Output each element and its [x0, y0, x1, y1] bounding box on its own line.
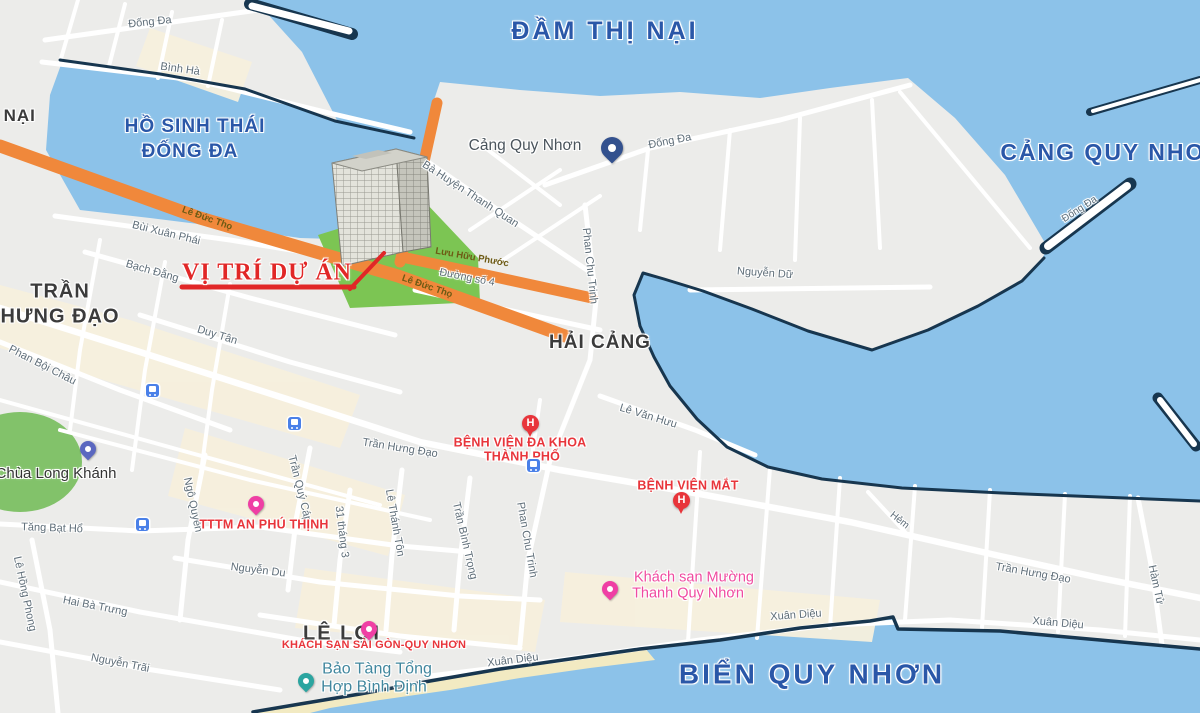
poi-label-muong-thanh-line1: Khách sạn Mường: [634, 570, 754, 585]
poi-label-benh-vien-da-khoa-line1: BỆNH VIỆN ĐA KHOA: [454, 436, 587, 449]
street-label-tang-bat-ho: Tăng Bạt Hổ: [21, 522, 83, 536]
poi-label-benh-vien-mat: BỆNH VIỆN MẮT: [637, 479, 738, 492]
district-label-tran-hung-dao-line1: TRẦN: [30, 282, 90, 303]
hospital-marker-icon-mat: H: [673, 492, 690, 509]
bus-stop-icon: [146, 384, 159, 397]
poi-label-muong-thanh-line2: Thanh Quy Nhơn: [632, 586, 744, 601]
poi-label-khach-san-sai-gon: KHÁCH SẠN SÀI GÒN-QUY NHƠN: [282, 640, 466, 652]
water-label-ho-sinh-thai-line1: HỒ SINH THÁI: [125, 117, 266, 137]
bus-stop-icon: [136, 518, 149, 531]
poi-label-bao-tang-line2: Hợp Bình Định: [321, 680, 427, 697]
water-label-cang-quy-nhon: CẢNG QUY NHƠN: [1000, 140, 1200, 164]
poi-label-bao-tang-line1: Bảo Tàng Tổng: [322, 662, 432, 679]
bus-stop-icon: [527, 459, 540, 472]
hospital-marker-icon-da-khoa: H: [522, 415, 539, 432]
poi-label-chua-long-khanh: Chùa Long Khánh: [0, 466, 116, 482]
project-location-callout: VỊ TRÍ DỰ ÁN: [182, 260, 352, 285]
project-location-map: ĐẦM THỊ NẠI HỒ SINH THÁI ĐỐNG ĐA CẢNG QU…: [0, 0, 1200, 713]
poi-label-benh-vien-da-khoa-line2: THÀNH PHỐ: [484, 450, 560, 463]
water-label-dam-thi-nai: ĐẦM THỊ NẠI: [511, 18, 698, 44]
map-canvas: [0, 0, 1200, 713]
water-label-ho-sinh-thai-line2: ĐỐNG ĐA: [142, 142, 239, 162]
district-label-tran-hung-dao-line2: HƯNG ĐẠO: [0, 307, 119, 328]
poi-label-cang-quy-nhon: Cảng Quy Nhơn: [469, 138, 582, 154]
bus-stop-icon: [288, 417, 301, 430]
poi-label-tttm-an-phu-thinh: TTTM AN PHÚ THỊNH: [199, 518, 328, 531]
project-tower-3d: [332, 149, 431, 266]
district-label-hai-cang: HẢI CẢNG: [549, 333, 651, 353]
water-label-bien-quy-nhon: BIỂN QUY NHƠN: [679, 659, 945, 688]
district-label-nai-partial: Ị NẠI: [0, 107, 36, 125]
